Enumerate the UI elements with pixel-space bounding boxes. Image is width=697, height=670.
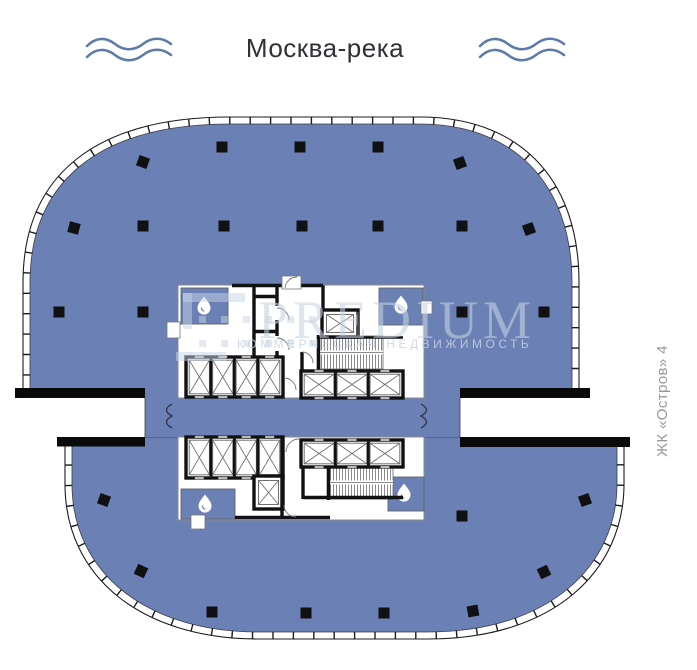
connection-bar bbox=[460, 388, 590, 398]
watermark-dot bbox=[287, 340, 294, 347]
column-marker bbox=[138, 307, 149, 318]
column-marker bbox=[457, 307, 468, 318]
right-notch bbox=[460, 388, 640, 447]
column-marker bbox=[539, 307, 550, 318]
column-marker bbox=[457, 221, 468, 232]
side-label: ЖК «Остров» 4 bbox=[654, 326, 672, 476]
bathroom bbox=[181, 489, 235, 519]
column-marker bbox=[297, 221, 308, 232]
elevator-bank bbox=[301, 370, 403, 399]
column-marker bbox=[457, 511, 468, 522]
connection-bar bbox=[460, 437, 630, 447]
watermark-dot bbox=[199, 340, 206, 347]
door-hook bbox=[421, 301, 432, 314]
column-marker bbox=[219, 221, 230, 232]
floor-plan-page: Москва-река bbox=[0, 0, 697, 670]
floor-plan-svg bbox=[0, 0, 697, 670]
connection-bar bbox=[15, 388, 145, 398]
watermark-dot bbox=[243, 316, 250, 323]
watermark-dot bbox=[199, 316, 206, 323]
elevator-bank bbox=[301, 439, 403, 468]
watermark-dot bbox=[243, 340, 250, 347]
elevator-bank bbox=[186, 356, 283, 398]
watermark-dot bbox=[309, 340, 316, 347]
left-notch bbox=[0, 388, 145, 447]
watermark-dot bbox=[221, 340, 228, 347]
elevator-bank bbox=[186, 436, 283, 479]
single-elevator bbox=[254, 476, 283, 509]
watermark-dot bbox=[221, 316, 228, 323]
column-marker bbox=[379, 608, 390, 619]
column-marker bbox=[373, 221, 384, 232]
watermark-dot bbox=[309, 316, 316, 323]
watermark-dot bbox=[265, 316, 272, 323]
single-elevator bbox=[322, 310, 358, 337]
column-marker bbox=[373, 142, 384, 153]
column-marker bbox=[295, 142, 306, 153]
door-hook bbox=[191, 515, 205, 529]
column-marker bbox=[138, 221, 149, 232]
column-marker bbox=[301, 608, 312, 619]
stairwell bbox=[328, 465, 393, 500]
column-marker bbox=[54, 307, 65, 318]
column-marker bbox=[467, 605, 480, 618]
connection-bar bbox=[57, 437, 145, 447]
door-hook bbox=[167, 322, 180, 338]
watermark-dot bbox=[287, 316, 294, 323]
bathroom bbox=[379, 288, 423, 325]
corridor-band bbox=[145, 398, 460, 437]
column-marker bbox=[207, 607, 218, 618]
stairwell bbox=[318, 335, 383, 370]
watermark-dot bbox=[265, 340, 272, 347]
column-marker bbox=[217, 142, 228, 153]
